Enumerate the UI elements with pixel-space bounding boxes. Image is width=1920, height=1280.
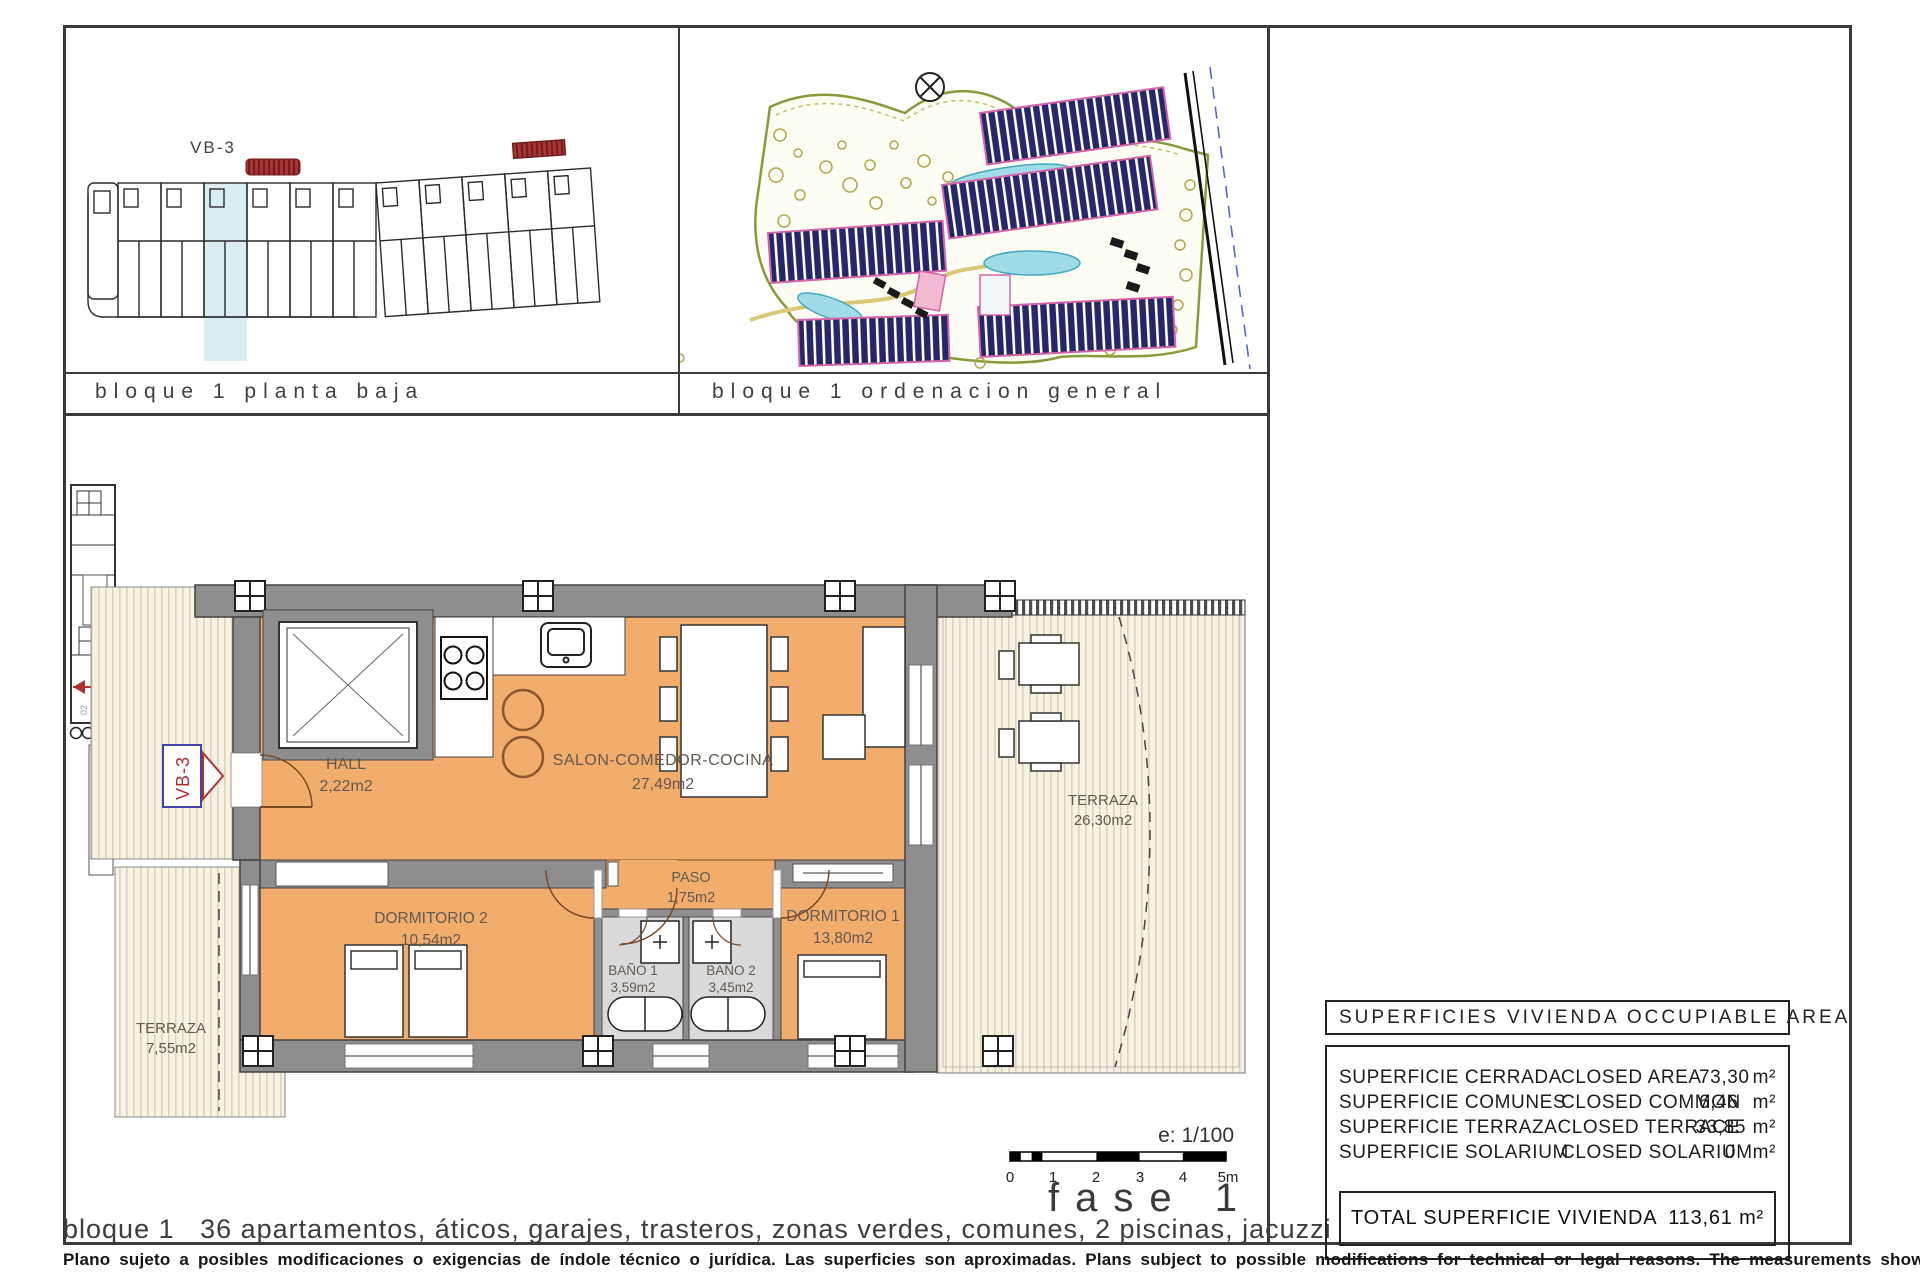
panel1-title: bloque 1 planta baja [95, 380, 424, 404]
svg-text:DORMITORIO 2: DORMITORIO 2 [374, 910, 487, 927]
svg-text:02: 02 [79, 705, 89, 715]
table-row: SUPERFICIE CERRADA CLOSED AREA 73,30 m² [1339, 1065, 1776, 1090]
svg-text:27,49m2: 27,49m2 [632, 776, 694, 793]
svg-text:2,22m2: 2,22m2 [319, 778, 372, 795]
table-row: SUPERFICIE SOLARIUM CLOSED SOLARIUM 0 m² [1339, 1140, 1776, 1165]
svg-text:SALON-COMEDOR-COCINA: SALON-COMEDOR-COCINA [553, 752, 774, 769]
areas-table-body: SUPERFICIE CERRADA CLOSED AREA 73,30 m² … [1325, 1045, 1790, 1260]
sink-icon [541, 623, 591, 667]
svg-text:1,75m2: 1,75m2 [667, 890, 715, 906]
table-row: SUPERFICIE TERRAZA CLOSED TERRACE 33,85 … [1339, 1115, 1776, 1140]
scale-segments [1010, 1152, 1226, 1161]
table-total-row: TOTAL SUPERFICIE VIVIENDA 113,61 m² [1339, 1191, 1776, 1246]
svg-text:BAÑO 1: BAÑO 1 [608, 963, 658, 978]
areas-table: SUPERFICIES VIVIENDA OCCUPIABLE AREA SUP… [1325, 1000, 1790, 1260]
north-symbol-icon [916, 73, 944, 101]
svg-text:TERRAZA: TERRAZA [136, 1020, 206, 1037]
terrace-right: TERRAZA 26,30m2 [937, 600, 1245, 1073]
bathrooms: BAÑO 1 3,59m2 BAÑO 2 3,45m2 [602, 917, 773, 1040]
svg-text:10,54m2: 10,54m2 [401, 932, 461, 949]
divider-main [1267, 25, 1270, 1245]
site-plan-ordenacion [680, 25, 1267, 373]
wall-unit [863, 627, 905, 747]
areas-table-header: SUPERFICIES VIVIENDA OCCUPIABLE AREA [1325, 1000, 1790, 1035]
footer-title: bloque 1 36 apartamentos, áticos, garaje… [63, 1214, 1267, 1245]
svg-text:DORMITORIO 1: DORMITORIO 1 [786, 908, 899, 925]
side-table [823, 715, 865, 759]
plan-sheet: VB-3 bloque 1 planta baja [0, 0, 1920, 1280]
scale-ratio: e: 1/100 [1158, 1124, 1234, 1147]
svg-text:26,30m2: 26,30m2 [1074, 812, 1132, 829]
svg-text:VB-3: VB-3 [173, 756, 193, 800]
svg-text:3,59m2: 3,59m2 [610, 980, 655, 995]
svg-text:13,80m2: 13,80m2 [813, 930, 873, 947]
unit-label-vb3: VB-3 [190, 138, 236, 157]
table-row: SUPERFICIE COMUNES CLOSED COMMON 6,46 m² [1339, 1090, 1776, 1115]
key-plan-planta-baja: VB-3 [63, 25, 678, 373]
svg-text:HALL: HALL [326, 756, 366, 773]
elevator [263, 610, 433, 760]
disclaimer: Plano sujeto a posibles modificaciones o… [63, 1250, 1855, 1270]
svg-text:BAÑO 2: BAÑO 2 [706, 963, 756, 978]
stove-icon [441, 637, 487, 699]
building-right-wing [374, 138, 600, 317]
red-roof-marker [246, 159, 300, 175]
svg-text:3,45m2: 3,45m2 [708, 980, 753, 995]
entrance-walkway [91, 587, 233, 859]
svg-text:TERRAZA: TERRAZA [1068, 792, 1138, 809]
panel2-title: bloque 1 ordenacion general [712, 380, 1167, 404]
svg-text:PASO: PASO [671, 870, 710, 886]
terrace-railing [1012, 600, 1245, 615]
svg-text:7,55m2: 7,55m2 [146, 1040, 196, 1057]
bedroom1-bed [798, 955, 886, 1039]
apartment-floor-plan: 02 01 TERRAZA 7,55m2 [63, 415, 1267, 1245]
